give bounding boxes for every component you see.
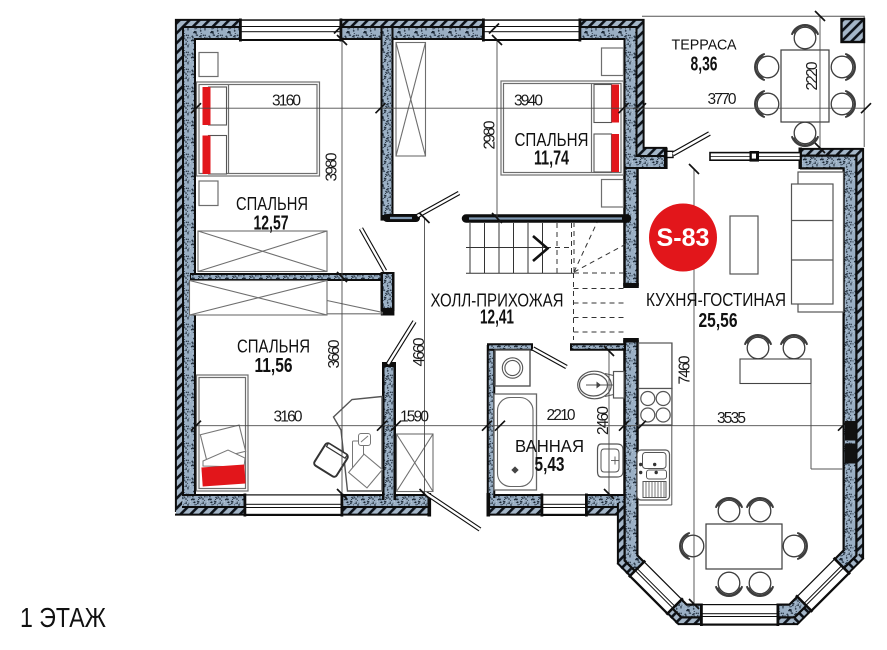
svg-text:3940: 3940 bbox=[514, 93, 543, 110]
svg-text:5,43: 5,43 bbox=[535, 454, 565, 476]
svg-text:11,74: 11,74 bbox=[534, 147, 569, 170]
svg-text:3535: 3535 bbox=[717, 410, 746, 427]
svg-text:КУХНЯ-ГОСТИНАЯ: КУХНЯ-ГОСТИНАЯ bbox=[646, 290, 786, 310]
svg-text:12,41: 12,41 bbox=[480, 306, 514, 329]
svg-text:S-83: S-83 bbox=[657, 224, 710, 252]
svg-text:3160: 3160 bbox=[274, 409, 303, 426]
svg-text:4660: 4660 bbox=[411, 337, 428, 366]
svg-text:ВАННАЯ: ВАННАЯ bbox=[515, 436, 584, 456]
svg-text:25,56: 25,56 bbox=[699, 309, 738, 332]
svg-text:3660: 3660 bbox=[326, 339, 343, 368]
svg-text:3770: 3770 bbox=[708, 91, 737, 108]
svg-text:1590: 1590 bbox=[400, 409, 429, 426]
svg-text:12,57: 12,57 bbox=[254, 212, 289, 235]
svg-text:8,36: 8,36 bbox=[691, 54, 718, 76]
svg-text:7460: 7460 bbox=[677, 355, 694, 384]
svg-text:ТЕРРАСА: ТЕРРАСА bbox=[672, 37, 737, 54]
svg-text:3980: 3980 bbox=[324, 152, 341, 181]
svg-text:2220: 2220 bbox=[804, 61, 821, 90]
svg-text:3160: 3160 bbox=[272, 93, 301, 110]
svg-text:11,56: 11,56 bbox=[255, 354, 293, 377]
svg-text:2460: 2460 bbox=[595, 406, 612, 435]
svg-text:2210: 2210 bbox=[547, 407, 576, 424]
svg-text:1 ЭТАЖ: 1 ЭТАЖ bbox=[20, 602, 106, 633]
svg-text:2980: 2980 bbox=[482, 120, 499, 149]
